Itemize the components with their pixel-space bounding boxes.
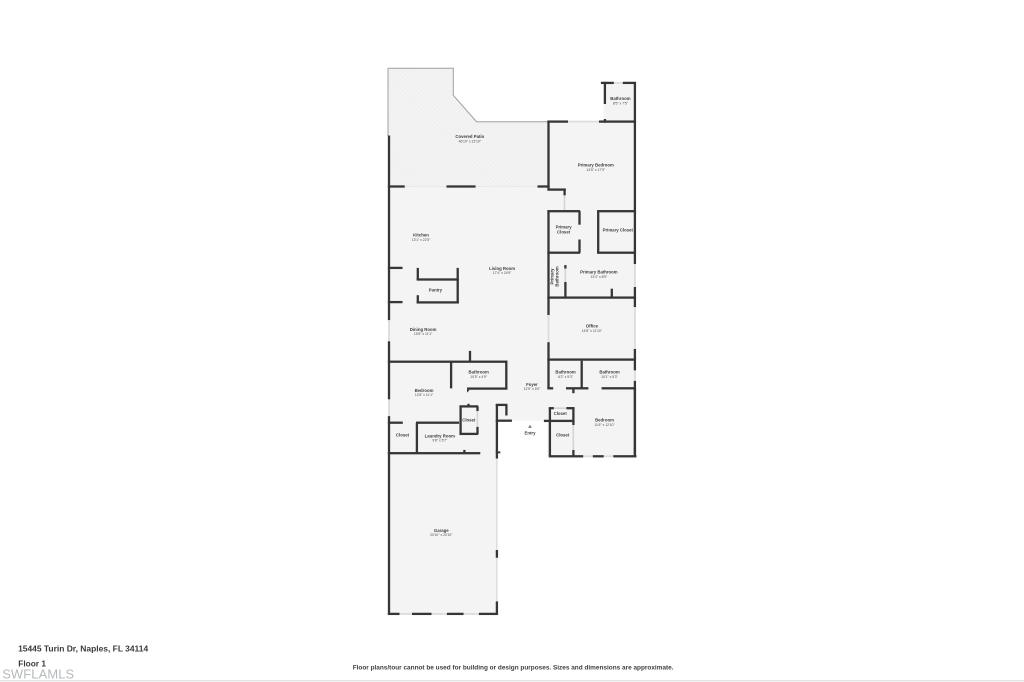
svg-text:8'5" x 7'5": 8'5" x 7'5" (613, 102, 629, 106)
svg-text:Closet: Closet (557, 230, 571, 235)
svg-text:15445 Turin Dr, Naples, FL 341: 15445 Turin Dr, Naples, FL 34114 (18, 643, 148, 653)
svg-text:46'10" x 22'10": 46'10" x 22'10" (459, 140, 482, 144)
svg-text:SWFLAMLS: SWFLAMLS (2, 666, 74, 681)
svg-text:Kitchen: Kitchen (413, 233, 429, 238)
svg-text:Entry: Entry (525, 430, 537, 435)
svg-text:Dining Room: Dining Room (410, 327, 437, 332)
svg-text:20'10" x 20'10": 20'10" x 20'10" (430, 533, 453, 537)
svg-text:Closet: Closet (554, 411, 568, 416)
svg-text:Bathroom: Bathroom (469, 370, 489, 375)
svg-text:9'8" x 5'7": 9'8" x 5'7" (432, 439, 448, 443)
svg-text:10'5" x 4'9": 10'5" x 4'9" (470, 375, 488, 379)
svg-text:Closet: Closet (396, 433, 410, 438)
svg-text:Closet: Closet (462, 417, 476, 422)
svg-text:Bedroom: Bedroom (415, 388, 434, 393)
svg-text:10'1" x 5'3": 10'1" x 5'3" (601, 375, 619, 379)
svg-text:Bathroom: Bathroom (554, 266, 559, 286)
svg-text:Closet: Closet (556, 433, 570, 438)
svg-text:Primary Bedroom: Primary Bedroom (578, 163, 614, 168)
svg-text:14'8" x 11'10": 14'8" x 11'10" (582, 329, 603, 333)
svg-text:Floor plans/tour cannot be use: Floor plans/tour cannot be used for buil… (353, 665, 674, 672)
svg-text:Office: Office (586, 324, 599, 329)
svg-text:6'2" x 5'3": 6'2" x 5'3" (558, 375, 574, 379)
svg-text:13'1" x 22'5": 13'1" x 22'5" (412, 238, 431, 242)
svg-text:11'6" x 12'10": 11'6" x 12'10" (594, 423, 615, 427)
svg-text:12'9" x 5'0": 12'9" x 5'0" (524, 387, 542, 391)
svg-text:Bathroom: Bathroom (599, 370, 619, 375)
svg-text:14'5" x 17'9": 14'5" x 17'9" (586, 168, 605, 172)
svg-text:Bedroom: Bedroom (595, 418, 614, 423)
svg-text:Living Room: Living Room (489, 266, 515, 271)
svg-text:Foyer: Foyer (526, 382, 538, 387)
svg-text:15'8" x 11'1": 15'8" x 11'1" (414, 332, 433, 336)
svg-text:Pantry: Pantry (429, 288, 443, 293)
svg-text:Primary Bathroom: Primary Bathroom (580, 270, 618, 275)
svg-text:Laundry Room: Laundry Room (425, 433, 455, 438)
svg-text:17'4" x 24'9": 17'4" x 24'9" (493, 271, 512, 275)
svg-text:Primary Closet: Primary Closet (603, 227, 634, 232)
svg-text:13'4" x 8'9": 13'4" x 8'9" (591, 275, 609, 279)
svg-text:Bathroom: Bathroom (610, 96, 630, 101)
svg-text:Garage: Garage (434, 528, 449, 533)
svg-text:Covered Patio: Covered Patio (455, 134, 484, 139)
svg-text:Bathroom: Bathroom (555, 370, 575, 375)
svg-text:12'8" x 11'1": 12'8" x 11'1" (415, 393, 434, 397)
